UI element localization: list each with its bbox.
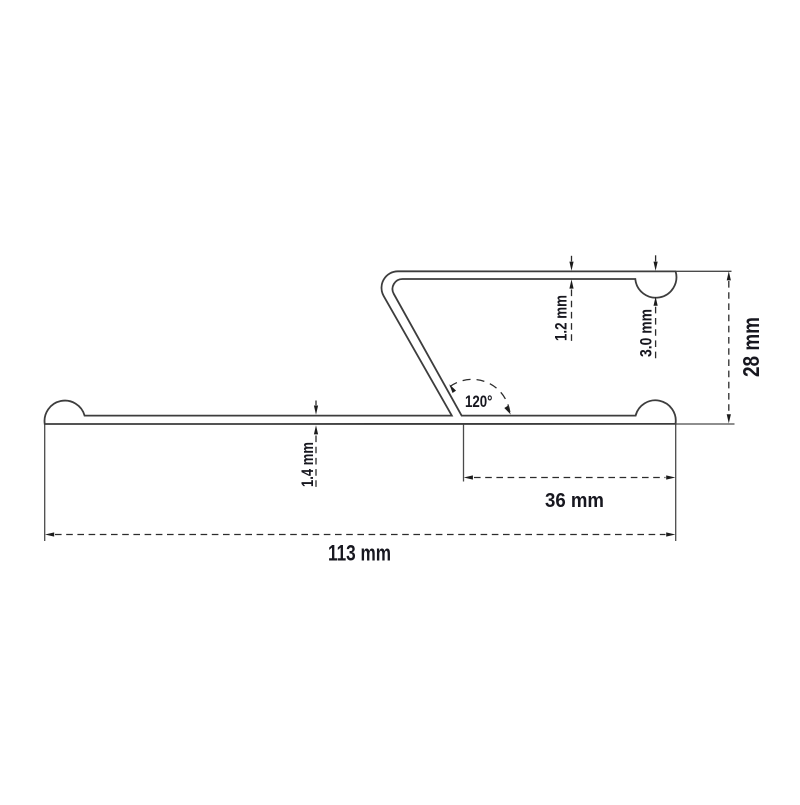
svg-text:1.4 mm: 1.4 mm bbox=[299, 442, 317, 487]
svg-text:28 mm: 28 mm bbox=[738, 317, 764, 377]
svg-text:36 mm: 36 mm bbox=[545, 489, 604, 512]
svg-text:120°: 120° bbox=[465, 393, 493, 411]
svg-text:3.0 mm: 3.0 mm bbox=[638, 309, 656, 357]
svg-text:1.2 mm: 1.2 mm bbox=[553, 295, 571, 341]
svg-text:113 mm: 113 mm bbox=[328, 540, 391, 565]
